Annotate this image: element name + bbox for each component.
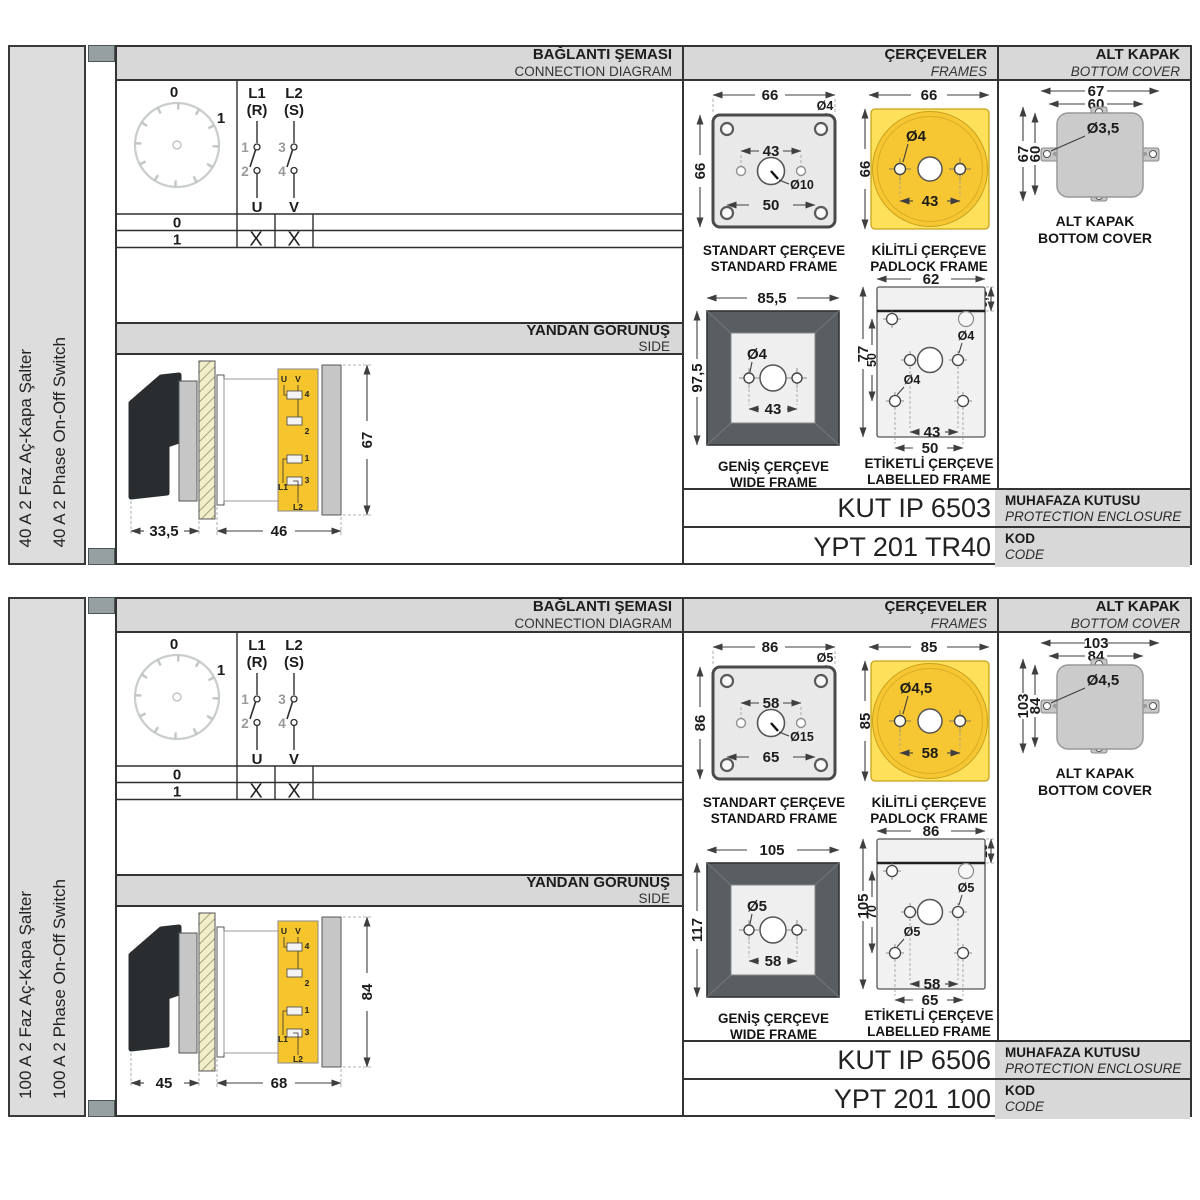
enclosure-code: KUT IP 6506 — [682, 1042, 995, 1078]
binder-mark-top — [88, 45, 115, 62]
labelled-hole-span: 70 — [865, 905, 879, 919]
dim-handle-depth: 33,5 — [149, 523, 178, 540]
svg-text:3: 3 — [305, 475, 310, 485]
svg-text:4: 4 — [305, 389, 310, 399]
labelled-hole1-dia: Ø4 — [958, 329, 975, 343]
standard-hole-dia: Ø4 — [817, 99, 834, 113]
labelled-hole-span: 50 — [865, 353, 879, 367]
rotary-dial: 0 1 — [135, 636, 225, 739]
column-header-band: BAĞLANTI ŞEMASI CONNECTION DIAGRAM ÇERÇE… — [117, 599, 1190, 633]
side-header-en: SIDE — [638, 891, 670, 907]
standard-frame-block: 86 Ø5 86 58 Ø15 — [689, 635, 859, 827]
side-view-header: YANDAN GÖRÜNÜŞ SIDE — [117, 322, 682, 355]
svg-text:L1: L1 — [278, 482, 288, 492]
code-row: YPT 201 100 KOD CODE — [682, 1078, 1190, 1119]
side-header-en: SIDE — [638, 339, 670, 355]
padlock-frame-block: 66 66 Ø4 43 — [861, 83, 997, 275]
wide-frame-drawing: 85,5 97,5 Ø4 — [691, 287, 856, 457]
dim-height: 67 — [359, 432, 376, 449]
wide-inner-span: 43 — [765, 401, 782, 418]
labelled-frame-drawing: 86 13 105 70 — [859, 821, 999, 1006]
product-title-english: 100 A 2 Phase On-Off Switch — [50, 879, 70, 1099]
svg-text:1: 1 — [305, 453, 310, 463]
padlock-hole-dia: Ø4 — [906, 128, 927, 145]
padlock-inner-span: 43 — [922, 193, 939, 210]
bottom-cover-caption: ALT KAPAK BOTTOM COVER — [1038, 765, 1152, 799]
frames-header-tr: ÇERÇEVELER — [884, 599, 987, 616]
product-code: YPT 201 TR40 — [682, 528, 995, 567]
wide-width: 105 — [759, 842, 784, 859]
connection-header-tr: BAĞLANTI ŞEMASI — [533, 47, 672, 64]
product-code: YPT 201 100 — [682, 1080, 995, 1119]
svg-text:3: 3 — [278, 692, 286, 707]
standard-frame-drawing: 86 Ø5 86 58 Ø15 — [689, 635, 859, 793]
standard-bottom-span: 50 — [763, 197, 780, 214]
frames-header-tr: ÇERÇEVELER — [884, 47, 987, 64]
pole-l2: L2 (S) 3 4 V — [278, 85, 304, 216]
standard-center-dia: Ø15 — [790, 730, 814, 744]
datasheet-main: BAĞLANTI ŞEMASI CONNECTION DIAGRAM ÇERÇE… — [115, 597, 1192, 1117]
side-view-header: YANDAN GÖRÜNÜŞ SIDE — [117, 874, 682, 907]
wide-frame-block: 85,5 97,5 Ø4 — [691, 287, 856, 491]
connection-diagram-header: BAĞLANTI ŞEMASI CONNECTION DIAGRAM — [117, 47, 682, 79]
product-title-english: 40 A 2 Phase On-Off Switch — [50, 337, 70, 547]
table-row0-pos: 0 — [173, 767, 181, 784]
product-title-sidebar: 100 A 2 Faz Aç-Kapa Şalter 100 A 2 Phase… — [8, 597, 86, 1117]
dial-position-0: 0 — [170, 84, 178, 101]
standard-center-dia: Ø10 — [790, 178, 814, 192]
frames-header: ÇERÇEVELER FRAMES — [682, 47, 997, 79]
side-view-drawing: U V 4 2 1 3 L1 L2 — [117, 355, 682, 566]
svg-text:1: 1 — [241, 692, 249, 707]
switch-side-profile — [131, 913, 341, 1071]
cover-hole-dia: Ø3,5 — [1087, 120, 1120, 137]
connection-diagram-header: BAĞLANTI ŞEMASI CONNECTION DIAGRAM — [117, 599, 682, 631]
labelled-dim1: 43 — [924, 424, 941, 441]
svg-text:(S): (S) — [284, 102, 304, 119]
switching-table: 0 1 X X — [117, 214, 682, 251]
labelled-hole2-dia: Ø5 — [904, 925, 921, 939]
dim-body-depth: 46 — [271, 523, 288, 540]
standard-frame-block: 66 Ø4 66 43 Ø10 — [689, 83, 859, 275]
frames-header-en: FRAMES — [931, 64, 987, 80]
product-title-turkish: 40 A 2 Faz Aç-Kapa Şalter — [16, 349, 36, 547]
labelled-hole2-dia: Ø4 — [904, 373, 921, 387]
svg-text:L1: L1 — [248, 637, 266, 654]
labelled-width: 62 — [923, 271, 940, 288]
bottom-cover-header: ALT KAPAK BOTTOM COVER — [997, 599, 1190, 631]
padlock-frame-block: 85 85 Ø4,5 58 — [861, 635, 997, 827]
standard-hole-dia: Ø5 — [817, 651, 834, 665]
labelled-dim1: 58 — [924, 976, 941, 993]
frames-header: ÇERÇEVELER FRAMES — [682, 599, 997, 631]
cover-header-tr: ALT KAPAK — [1096, 599, 1180, 616]
wide-width: 85,5 — [757, 290, 786, 307]
labelled-frame-drawing: 62 9,5 77 50 — [859, 269, 999, 454]
wide-frame-caption: GENİŞ ÇERÇEVE WIDE FRAME — [718, 459, 829, 491]
connection-diagram: 0 1 L1 (R) 1 2 U L2 (S) — [117, 633, 682, 801]
wide-inner-span: 58 — [765, 953, 782, 970]
labelled-dim2: 50 — [922, 440, 939, 457]
wide-frame-caption: GENİŞ ÇERÇEVE WIDE FRAME — [718, 1011, 829, 1043]
pole-l2: L2 (S) 3 4 V — [278, 637, 304, 768]
standard-frame-drawing: 66 Ø4 66 43 Ø10 — [689, 83, 859, 241]
standard-frame-caption: STANDART ÇERÇEVE STANDARD FRAME — [703, 243, 845, 275]
column-header-band: BAĞLANTI ŞEMASI CONNECTION DIAGRAM ÇERÇE… — [117, 47, 1190, 81]
svg-text:1: 1 — [305, 1005, 310, 1015]
svg-text:(R): (R) — [247, 654, 268, 671]
wide-height: 117 — [689, 918, 706, 942]
padlock-inner-span: 58 — [922, 745, 939, 762]
code-label: KOD CODE — [995, 1080, 1190, 1119]
binder-mark-bottom — [88, 1100, 115, 1117]
bottom-cover-block: 67 60 67 60 Ø3, — [1005, 83, 1185, 247]
dim-height: 84 — [359, 983, 376, 1000]
svg-text:4: 4 — [278, 164, 286, 179]
padlock-frame-drawing: 66 66 Ø4 43 — [861, 83, 997, 241]
labelled-width: 86 — [923, 823, 940, 840]
column-divider-1 — [682, 599, 684, 1115]
product-title-sidebar: 40 A 2 Faz Aç-Kapa Şalter 40 A 2 Phase O… — [8, 45, 86, 565]
svg-text:V: V — [295, 926, 301, 936]
svg-text:1: 1 — [241, 140, 249, 155]
padlock-frame-drawing: 85 85 Ø4,5 58 — [861, 635, 997, 793]
standard-height: 66 — [692, 163, 709, 180]
table-row1-pos: 1 — [173, 784, 181, 801]
wide-hole-dia: Ø4 — [747, 346, 768, 363]
svg-text:L2: L2 — [293, 1054, 303, 1064]
dial-position-0: 0 — [170, 636, 178, 653]
side-header-tr: YANDAN GÖRÜNÜŞ — [526, 323, 670, 340]
table-row0-pos: 0 — [173, 215, 181, 232]
table-row1-u-mark: X — [249, 229, 262, 251]
cover-hole-dia: Ø4,5 — [1087, 672, 1120, 689]
cover-header-en: BOTTOM COVER — [1071, 64, 1180, 80]
frames-header-en: FRAMES — [931, 616, 987, 632]
code-label: KOD CODE — [995, 528, 1190, 567]
padlock-hole-dia: Ø4,5 — [900, 680, 933, 697]
cover-header-en: BOTTOM COVER — [1071, 616, 1180, 632]
wide-frame-drawing: 105 117 Ø5 — [691, 839, 856, 1009]
svg-text:2: 2 — [241, 716, 249, 731]
wide-height: 97,5 — [689, 363, 706, 392]
standard-bottom-span: 65 — [763, 749, 780, 766]
connection-header-en: CONNECTION DIAGRAM — [514, 616, 672, 632]
labelled-frame-block: 62 9,5 77 50 — [859, 269, 999, 488]
binder-mark-bottom — [88, 548, 115, 565]
padlock-width: 66 — [921, 87, 938, 104]
switch-side-profile — [131, 361, 341, 519]
labelled-frame-block: 86 13 105 70 — [859, 821, 999, 1040]
enclosure-code: KUT IP 6503 — [682, 490, 995, 526]
enclosure-label: MUHAFAZA KUTUSU PROTECTION ENCLOSURE — [995, 1042, 1190, 1078]
bottom-cover-caption: ALT KAPAK BOTTOM COVER — [1038, 213, 1152, 247]
svg-text:4: 4 — [278, 716, 286, 731]
svg-text:U: U — [281, 374, 287, 384]
labelled-dim2: 65 — [922, 992, 939, 1009]
svg-text:L1: L1 — [248, 85, 266, 102]
binder-mark-top — [88, 597, 115, 614]
padlock-width: 85 — [921, 639, 938, 656]
wide-frame-block: 105 117 Ø5 — [691, 839, 856, 1043]
side-view-drawing: U V 4 2 1 3 L1 L2 — [117, 907, 682, 1118]
svg-text:L2: L2 — [293, 502, 303, 512]
switching-table: 0 1 X X — [117, 766, 682, 803]
dim-body-depth: 68 — [271, 1075, 288, 1092]
labelled-frame-caption: ETİKETLİ ÇERÇEVE LABELLED FRAME — [864, 456, 993, 488]
labelled-frame-caption: ETİKETLİ ÇERÇEVE LABELLED FRAME — [864, 1008, 993, 1040]
table-row1-v-mark: X — [287, 781, 300, 803]
standard-width: 86 — [762, 639, 779, 656]
dial-position-1: 1 — [217, 662, 225, 679]
table-row1-u-mark: X — [249, 781, 262, 803]
standard-width: 66 — [762, 87, 779, 104]
labelled-hole1-dia: Ø5 — [958, 881, 975, 895]
table-row1-v-mark: X — [287, 229, 300, 251]
svg-text:L1: L1 — [278, 1034, 288, 1044]
bottom-cover-drawing: 67 60 67 60 Ø3, — [1005, 83, 1185, 211]
standard-frame-caption: STANDART ÇERÇEVE STANDARD FRAME — [703, 795, 845, 827]
dim-handle-depth: 45 — [156, 1075, 173, 1092]
svg-text:3: 3 — [278, 140, 286, 155]
svg-text:(S): (S) — [284, 654, 304, 671]
bottom-cover-header: ALT KAPAK BOTTOM COVER — [997, 47, 1190, 79]
pole-l1: L1 (R) 1 2 U — [241, 637, 267, 768]
enclosure-row: KUT IP 6506 MUHAFAZA KUTUSU PROTECTION E… — [682, 1040, 1190, 1078]
svg-text:2: 2 — [241, 164, 249, 179]
svg-text:V: V — [295, 374, 301, 384]
product-title-turkish: 100 A 2 Faz Aç-Kapa Şalter — [16, 891, 36, 1099]
product-section-100a: 100 A 2 Faz Aç-Kapa Şalter 100 A 2 Phase… — [8, 597, 1192, 1117]
svg-text:L2: L2 — [285, 85, 303, 102]
svg-text:U: U — [281, 926, 287, 936]
rotary-dial: 0 1 — [135, 84, 225, 187]
connection-header-en: CONNECTION DIAGRAM — [514, 64, 672, 80]
standard-height: 86 — [692, 715, 709, 732]
svg-text:2: 2 — [305, 978, 310, 988]
connection-header-tr: BAĞLANTI ŞEMASI — [533, 599, 672, 616]
wide-hole-dia: Ø5 — [747, 898, 767, 915]
svg-text:(R): (R) — [247, 102, 268, 119]
svg-text:L2: L2 — [285, 637, 303, 654]
bottom-cover-block: 103 84 103 84 Ø — [1005, 635, 1185, 799]
datasheet-main: BAĞLANTI ŞEMASI CONNECTION DIAGRAM ÇERÇE… — [115, 45, 1192, 565]
svg-text:4: 4 — [305, 941, 310, 951]
code-row: YPT 201 TR40 KOD CODE — [682, 526, 1190, 567]
side-header-tr: YANDAN GÖRÜNÜŞ — [526, 875, 670, 892]
table-row1-pos: 1 — [173, 232, 181, 249]
enclosure-label: MUHAFAZA KUTUSU PROTECTION ENCLOSURE — [995, 490, 1190, 526]
svg-text:2: 2 — [305, 426, 310, 436]
pole-l1: L1 (R) 1 2 U — [241, 85, 267, 216]
connection-diagram: 0 1 L1 (R) 1 2 U L2 (S) — [117, 81, 682, 249]
column-divider-1 — [682, 47, 684, 563]
dial-position-1: 1 — [217, 110, 225, 127]
bottom-cover-drawing: 103 84 103 84 Ø — [1005, 635, 1185, 763]
product-section-40a: 40 A 2 Faz Aç-Kapa Şalter 40 A 2 Phase O… — [8, 45, 1192, 565]
cover-header-tr: ALT KAPAK — [1096, 47, 1180, 64]
enclosure-row: KUT IP 6503 MUHAFAZA KUTUSU PROTECTION E… — [682, 488, 1190, 526]
svg-text:3: 3 — [305, 1027, 310, 1037]
